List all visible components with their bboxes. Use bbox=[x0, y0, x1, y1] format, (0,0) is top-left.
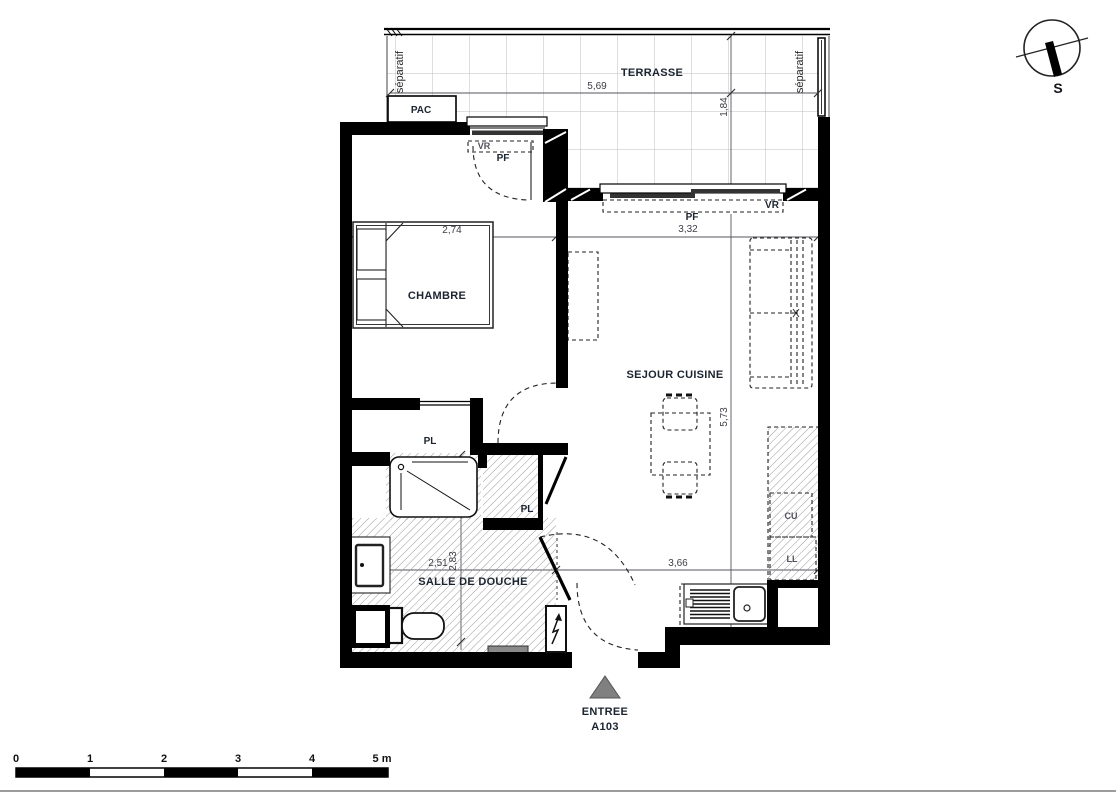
dim-living-width: 3,32 bbox=[678, 224, 698, 235]
dim-hall-width: 3,66 bbox=[668, 558, 688, 569]
wall-segment bbox=[340, 652, 572, 668]
pac-label: PAC bbox=[411, 105, 431, 116]
wall-segment bbox=[638, 652, 680, 668]
wall-segment bbox=[470, 398, 483, 455]
entrance-label: ENTREE bbox=[582, 706, 628, 718]
washer-label: LL bbox=[787, 554, 798, 564]
wall-segment bbox=[556, 202, 568, 388]
bedroom-window-pf-label: PF bbox=[497, 153, 510, 164]
wall-segment bbox=[352, 398, 420, 410]
wall-segment bbox=[483, 518, 543, 530]
floor-plan: TERRASSE 5,69 séparatif séparatif 1,84 P… bbox=[0, 0, 1116, 800]
unit-number-label: A103 bbox=[591, 721, 619, 733]
wall-segment bbox=[483, 443, 568, 455]
scale-tick-3: 3 bbox=[235, 753, 241, 765]
electrical-panel-icon bbox=[546, 606, 566, 652]
scale-tick-0: 0 bbox=[13, 753, 19, 765]
separator-left-label: séparatif bbox=[394, 50, 406, 93]
compass-south-label: S bbox=[1053, 80, 1062, 96]
toilet-bowl bbox=[402, 613, 444, 639]
wall-segment bbox=[767, 588, 778, 627]
wall-segment bbox=[340, 452, 390, 466]
scale-tick-4: 4 bbox=[309, 753, 316, 765]
wall-segment bbox=[340, 122, 470, 135]
sink-basin bbox=[734, 587, 765, 621]
pillow bbox=[357, 229, 386, 270]
wall-segment bbox=[538, 455, 543, 518]
wall-segment bbox=[478, 453, 487, 468]
bathroom-label: SALLE DE DOUCHE bbox=[418, 576, 528, 588]
toilet bbox=[385, 608, 444, 643]
pillow bbox=[357, 279, 386, 320]
dim-bathroom-width: 2,51 bbox=[428, 558, 448, 569]
scale-tick-1: 1 bbox=[87, 753, 93, 765]
bedroom-window-vr-label: VR bbox=[478, 141, 491, 151]
wall-segment bbox=[818, 117, 830, 645]
scale-end-label: 5 m bbox=[373, 753, 392, 765]
dim-terrace-width: 5,69 bbox=[587, 81, 607, 92]
shower-tray bbox=[390, 457, 477, 517]
separator-right-label: séparatif bbox=[794, 50, 806, 93]
dim-terrace-depth: 1,84 bbox=[719, 97, 730, 117]
dim-bedroom-width: 2,74 bbox=[442, 225, 462, 236]
bed bbox=[353, 222, 493, 328]
kitchen-sink-unit bbox=[680, 584, 768, 625]
wall-niche bbox=[778, 588, 818, 627]
wall-segment bbox=[340, 122, 352, 668]
faucet-dot bbox=[360, 563, 364, 567]
hob-label: CU bbox=[785, 511, 798, 521]
living-window-vr-label: VR bbox=[765, 200, 780, 211]
dim-living-height: 5,73 bbox=[719, 407, 730, 427]
terrace-label: TERRASSE bbox=[621, 67, 683, 79]
bedroom-label: CHAMBRE bbox=[408, 290, 466, 302]
dim-bathroom-height: 2,83 bbox=[448, 551, 459, 571]
wall-segment bbox=[665, 627, 830, 645]
floor-plan-page: TERRASSE 5,69 séparatif séparatif 1,84 P… bbox=[0, 0, 1116, 800]
living-window-pf-label: PF bbox=[686, 212, 699, 223]
wall-segment bbox=[767, 580, 830, 588]
living-label: SEJOUR CUISINE bbox=[626, 369, 723, 381]
wall-duct-niche bbox=[356, 611, 385, 643]
scale-tick-2: 2 bbox=[161, 753, 167, 765]
closet-upper-label: PL bbox=[424, 436, 437, 447]
closet-lower-label: PL bbox=[521, 504, 534, 515]
drainboard bbox=[686, 590, 730, 618]
